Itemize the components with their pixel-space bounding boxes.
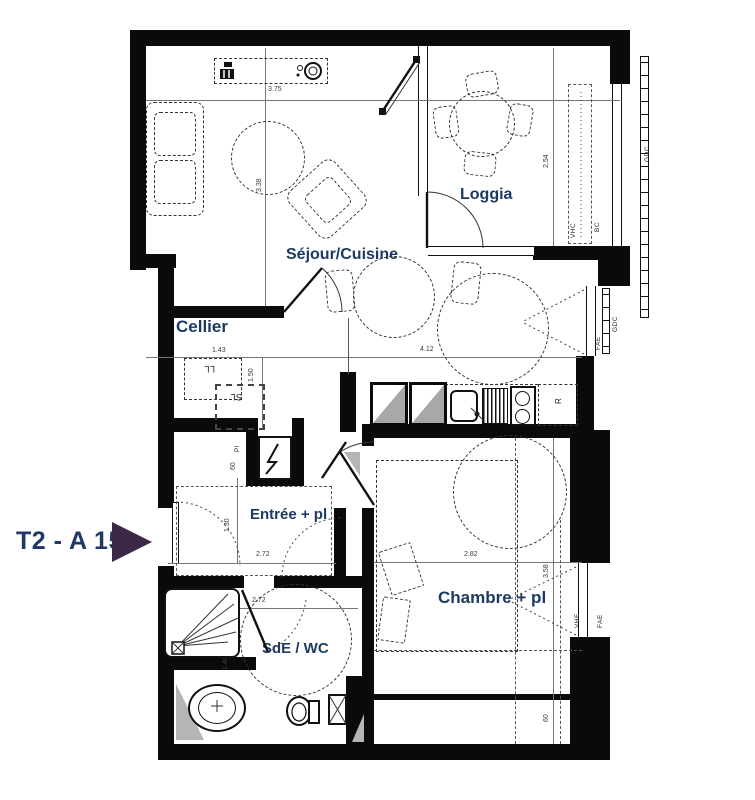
wall-entree-right <box>334 508 346 578</box>
wall-right-chambre <box>570 430 610 563</box>
turning-circle <box>453 435 567 549</box>
code-duct-chambre: VHE <box>574 613 581 628</box>
wall-right-block <box>598 246 630 286</box>
wall-left-upper <box>130 30 146 270</box>
burner <box>515 409 530 424</box>
appliance-zone <box>214 58 328 84</box>
loggia-tilted-leaf <box>379 56 420 115</box>
dim-line <box>146 100 620 101</box>
dim-loggia-right: 2.54 <box>543 154 550 168</box>
room-label-loggia: Loggia <box>460 186 512 204</box>
partition-line <box>348 318 349 374</box>
fridge-slot <box>538 384 578 426</box>
balcony-railing <box>640 56 649 318</box>
entree-closet-zone <box>176 486 332 576</box>
loggia-chair <box>505 102 534 138</box>
drainer <box>482 388 508 424</box>
reveal-shade <box>344 452 360 476</box>
turning-circle <box>437 273 549 385</box>
code-bc: BC <box>594 222 601 232</box>
code-railing-top: GDC <box>644 146 651 162</box>
kitchen-tall-unit <box>409 382 447 426</box>
wall-closet <box>374 694 582 700</box>
kitchen-sink <box>450 390 478 422</box>
wc-duct <box>329 695 346 724</box>
loggia-window <box>612 84 622 246</box>
code-window-chambre: FAE <box>597 614 604 628</box>
wall-top-right <box>610 30 630 84</box>
dim-sejour-top: 3.75 <box>268 86 282 93</box>
unit-pointer-arrow-icon <box>112 522 152 562</box>
loggia-glazing <box>418 46 428 196</box>
chambre-door <box>340 442 374 505</box>
window-railing <box>602 288 610 354</box>
loggia-table <box>449 91 515 157</box>
wall-left-mid <box>158 268 174 508</box>
niche-door <box>322 442 346 478</box>
closet-front <box>374 650 582 651</box>
kitchen-tall-unit <box>370 382 408 426</box>
wall-niche-right <box>292 418 304 480</box>
wall-bottom <box>158 744 610 760</box>
sofa-cushion <box>154 160 196 204</box>
dim-cellier-h: 1.50 <box>248 368 255 382</box>
loggia-chair <box>432 104 460 139</box>
unit-title: T2 - A 15 <box>16 527 123 556</box>
dim-sejour-mid: 4.12 <box>420 346 434 353</box>
floor-plan: T2 - A 15 Séjour/Cuisine <box>0 0 755 800</box>
sofa-cushion <box>154 112 196 156</box>
electrical-panel <box>258 436 292 480</box>
coffee-table <box>231 121 305 195</box>
dim-niche-depth: 60 <box>230 462 237 470</box>
dryer-slot <box>215 384 265 430</box>
duct-zone <box>568 84 592 244</box>
dining-table <box>353 256 435 338</box>
window-notch <box>588 563 630 637</box>
wall-chambre-jamb <box>362 438 374 446</box>
wall-top <box>130 30 628 46</box>
loggia-chair <box>463 150 497 177</box>
dining-chair <box>324 269 356 313</box>
room-label-cellier: Cellier <box>176 317 228 337</box>
wall-kitchen <box>362 424 576 438</box>
toilet-tank <box>308 700 320 724</box>
washbasin-bowl <box>198 692 236 724</box>
wall-loggia-bottom <box>533 246 603 260</box>
dim-sde-h: 1.48 <box>222 656 229 670</box>
dim-line <box>553 48 554 246</box>
closet-guide <box>515 438 516 744</box>
wall-sde-top-left <box>158 576 244 588</box>
wall-left-step <box>130 254 176 268</box>
dim-cellier-w: 1.43 <box>212 347 226 354</box>
turning-circle <box>240 584 352 696</box>
dim-chambre-h: 3.58 <box>543 564 550 578</box>
loggia-bottom-window <box>428 246 534 256</box>
code-closet: Pl <box>234 445 241 452</box>
burner <box>515 391 530 406</box>
code-window-mid: FAE <box>595 336 602 350</box>
shower <box>164 588 240 658</box>
wall-right-mid <box>576 356 594 438</box>
dim-closet-depth: 60 <box>543 714 550 722</box>
code-railing-mid: GDC <box>612 316 619 332</box>
wall-under-shower <box>158 657 256 670</box>
closet-guide <box>560 520 561 744</box>
wall-cellier-right <box>340 372 356 432</box>
